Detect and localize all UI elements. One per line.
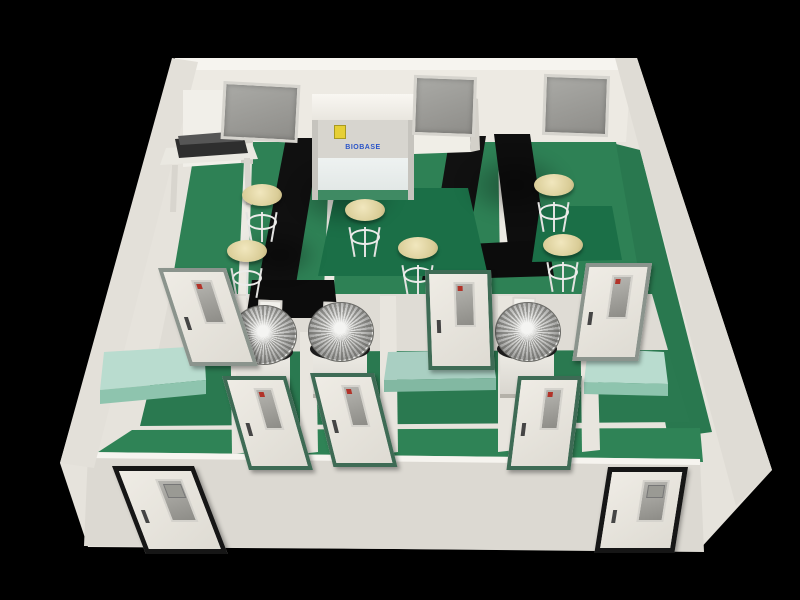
- interior-door-1-sign: [196, 284, 203, 289]
- biohazard-sticker-icon: [334, 125, 346, 139]
- stool-6-seat: [543, 234, 583, 256]
- interior-door-6-sign: [615, 279, 621, 284]
- stool-1: [242, 184, 282, 242]
- interior-door-4-handle: [437, 320, 441, 333]
- fan-unit-3-hub: [495, 302, 559, 360]
- stool-2-footring: [232, 270, 262, 286]
- lab-3d-render: BIOBASE: [0, 0, 800, 600]
- stool-1-footring: [247, 214, 277, 230]
- stool-1-seat: [242, 184, 282, 206]
- stool-5-footring: [539, 204, 569, 220]
- interior-door-3-sign: [345, 389, 351, 394]
- interior-door-4-window: [454, 282, 476, 326]
- stool-4-seat: [398, 237, 438, 259]
- back-window-1: [221, 81, 301, 143]
- stool-6: [543, 234, 583, 292]
- interior-door-5-sign: [547, 392, 553, 397]
- exterior-door-left-sign: [162, 484, 185, 498]
- back-window-2: [412, 75, 477, 137]
- interior-door-6: [572, 263, 652, 361]
- interior-door-2-sign: [258, 392, 264, 397]
- cabinet-header-panel: BIOBASE: [312, 120, 414, 158]
- stool-5: [534, 174, 574, 232]
- biosafety-cabinet: BIOBASE: [312, 94, 414, 200]
- stool-3: [345, 199, 385, 257]
- exterior-door-right: [594, 467, 688, 553]
- interior-door-4: [425, 270, 494, 370]
- fan-unit-2-hub: [308, 302, 372, 360]
- cabinet-top-panel: [312, 94, 414, 120]
- stool-5-seat: [534, 174, 574, 196]
- exterior-door-right-sign: [646, 485, 666, 498]
- back-window-3: [542, 74, 610, 137]
- cabinet-logo-text: BIOBASE: [312, 144, 414, 151]
- stool-6-footring: [548, 264, 578, 280]
- cabinet-glass-sash: [318, 158, 408, 200]
- stool-2-seat: [227, 240, 267, 262]
- stool-3-footring: [350, 229, 380, 245]
- interior-door-4-sign: [458, 286, 463, 291]
- stool-3-seat: [345, 199, 385, 221]
- interior-door-5: [506, 376, 582, 470]
